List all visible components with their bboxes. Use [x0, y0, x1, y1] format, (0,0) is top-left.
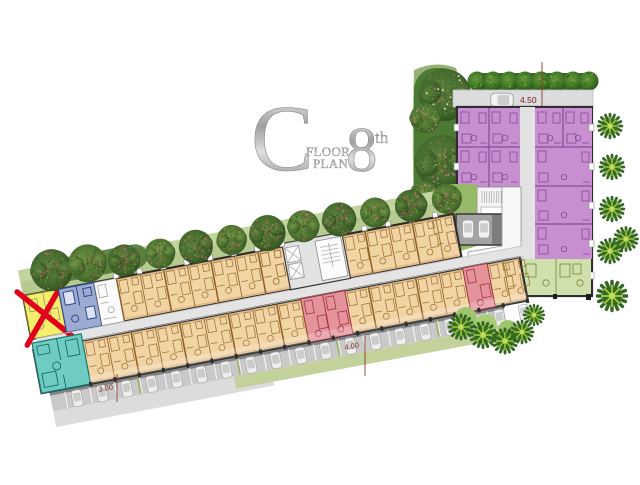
svg-text:th: th — [375, 128, 389, 147]
svg-text:8: 8 — [346, 115, 378, 185]
svg-text:C: C — [251, 87, 314, 191]
svg-text:PLAN: PLAN — [313, 156, 348, 171]
svg-text:4.50: 4.50 — [520, 95, 537, 105]
